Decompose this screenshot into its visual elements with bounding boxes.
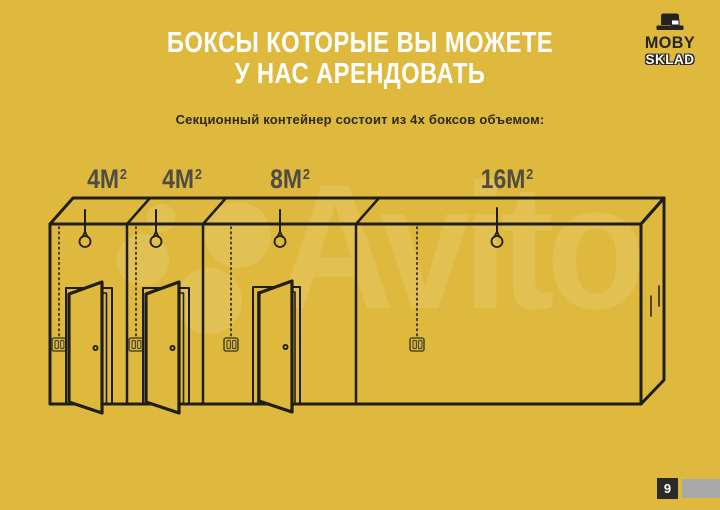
light-switch-icon (52, 338, 66, 351)
light-bulb-icons (80, 208, 503, 247)
storage-container-drawing (0, 0, 720, 510)
light-switch-icon (129, 338, 143, 351)
footer-strip (682, 479, 720, 498)
light-switch-icons (52, 338, 424, 351)
open-door (253, 281, 300, 412)
light-switch-icon (410, 338, 424, 351)
light-bulb-icon (492, 208, 503, 247)
light-bulb-icon (275, 210, 286, 247)
light-switch-icon (224, 338, 238, 351)
light-bulb-icon (151, 210, 162, 247)
open-door (66, 282, 112, 413)
light-bulb-icon (80, 210, 91, 247)
open-door (143, 282, 189, 413)
slide: Avito БОКСЫ КОТОРЫЕ ВЫ МОЖЕТЕ У НАС АРЕН… (0, 0, 720, 510)
page-number-badge: 9 (657, 478, 678, 499)
